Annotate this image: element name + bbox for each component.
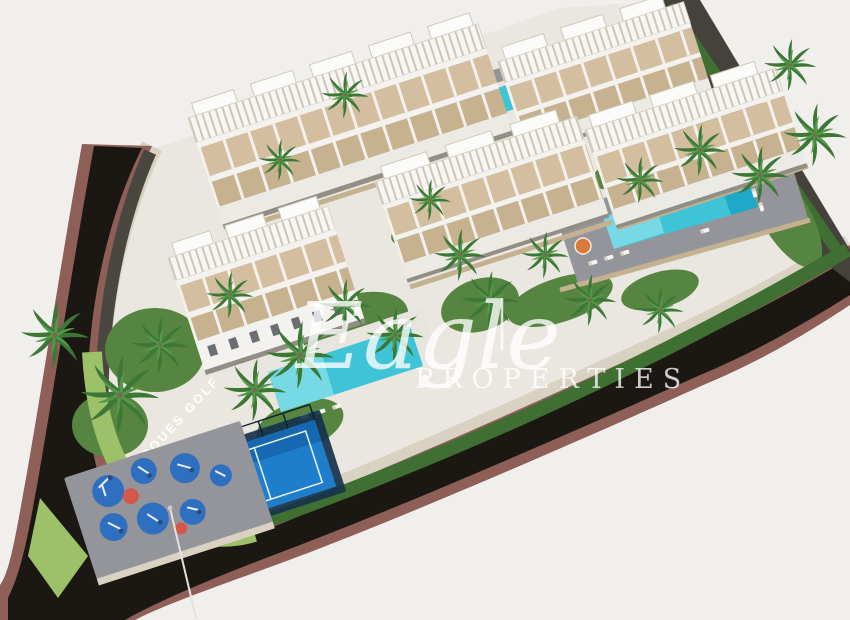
aerial-render-page: MARQUES GOLF: [0, 0, 850, 620]
parasol: [575, 238, 591, 254]
watermark-caps-text: PROPERTIES: [415, 364, 690, 395]
development-aerial-render: MARQUES GOLF: [0, 0, 850, 620]
